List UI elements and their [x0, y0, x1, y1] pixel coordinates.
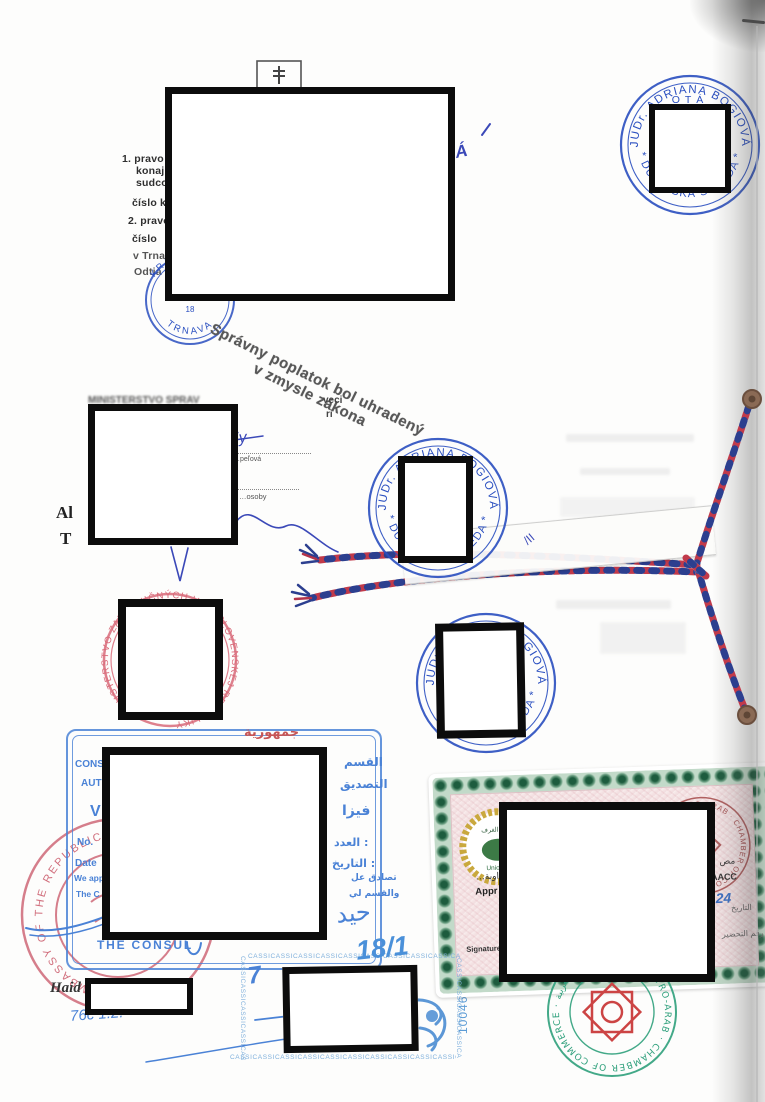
redaction-box-8 — [85, 978, 193, 1015]
eyelet-bottom-hole — [744, 712, 751, 719]
eyelet-top-hole — [749, 396, 756, 403]
cord-blue-twist — [697, 399, 751, 563]
redaction-box-2 — [649, 104, 731, 193]
scanned-document-page: 1. pravo konaj sudco číslo k 2. pravo čí… — [0, 0, 765, 1102]
redaction-box-1 — [165, 87, 455, 301]
redaction-box-7 — [102, 747, 327, 940]
binding-eyelets — [738, 390, 761, 724]
redaction-box-6 — [435, 622, 526, 739]
redaction-box-4 — [398, 456, 473, 563]
redaction-box-10 — [499, 802, 715, 982]
cord-blue-twist — [698, 570, 746, 712]
cord-strands — [686, 399, 751, 712]
redaction-box-9 — [282, 965, 418, 1053]
redaction-box-3 — [88, 404, 238, 545]
redaction-box-5 — [118, 599, 223, 720]
